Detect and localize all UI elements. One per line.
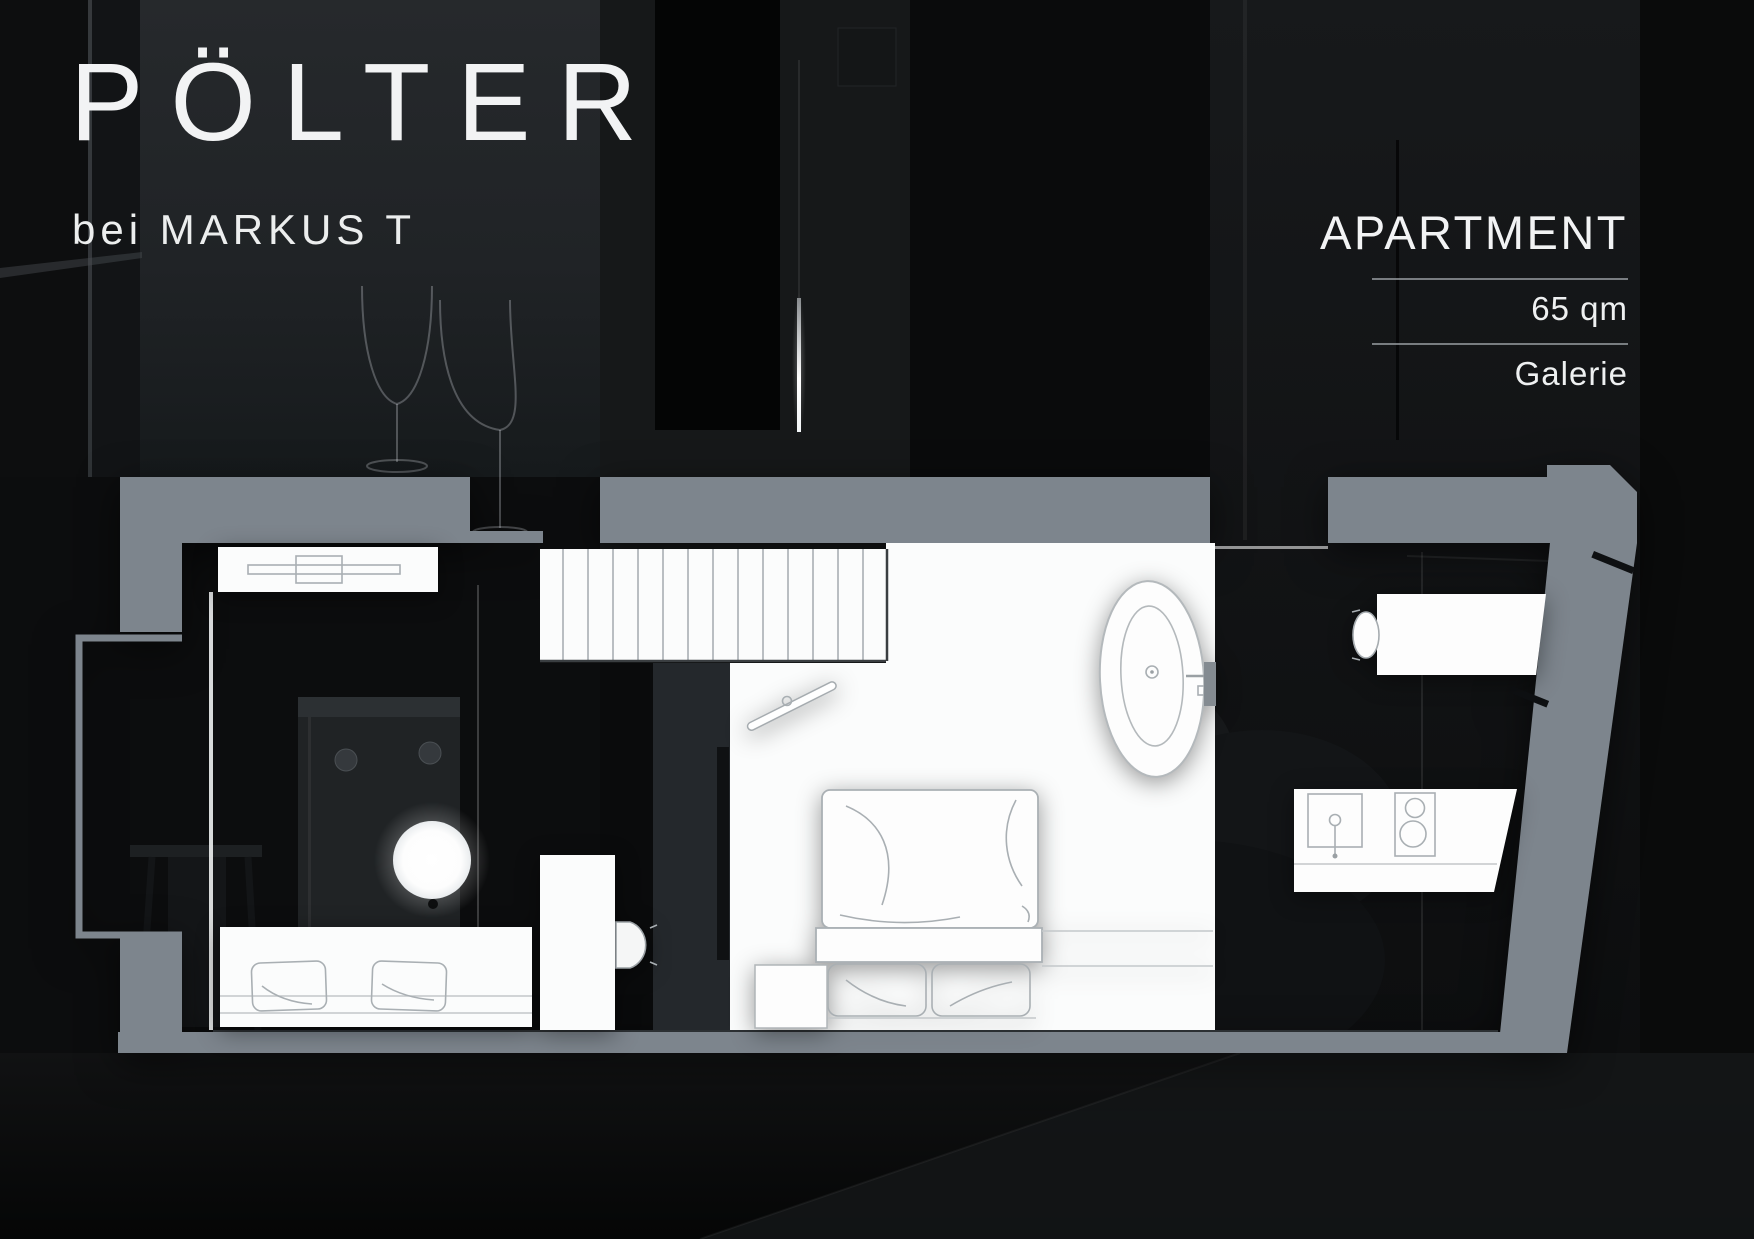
level-value: Galerie: [1318, 357, 1628, 390]
nightstand: [755, 965, 827, 1028]
desk: [540, 855, 615, 1030]
sideboard: [218, 547, 438, 592]
door-pivot: [1204, 662, 1216, 706]
pocket-door-slot: [717, 747, 729, 960]
window-sill-line: [1212, 546, 1328, 549]
fireplace-inset: [655, 0, 780, 430]
apartment-floorplan-poster: PÖLTER bei MARKUS T APARTMENT 65 qm Gale…: [0, 0, 1754, 1239]
west-room-edge: [209, 592, 213, 1030]
toilet: [1352, 594, 1546, 675]
area-value: 65 qm: [1318, 292, 1628, 325]
info-heading: APARTMENT: [1318, 209, 1628, 256]
info-panel: APARTMENT 65 qm Galerie: [1318, 195, 1628, 390]
page-subtitle: bei MARKUS T: [72, 206, 664, 254]
globe-lamp: [374, 802, 490, 918]
branding-block: PÖLTER bei MARKUS T: [70, 48, 664, 254]
west-wall-upper: [120, 477, 182, 632]
center-wall: [653, 663, 730, 1032]
west-wall-lower: [120, 935, 182, 1032]
top-wall-middle: [600, 477, 1210, 543]
kitchenette: [1294, 789, 1517, 892]
sofa: [220, 927, 532, 1027]
ceiling-vent: [838, 28, 896, 86]
bottom-wall: [118, 1032, 1521, 1053]
divider-line: [1372, 343, 1628, 345]
divider-line: [1372, 278, 1628, 280]
page-title: PÖLTER: [70, 48, 664, 158]
